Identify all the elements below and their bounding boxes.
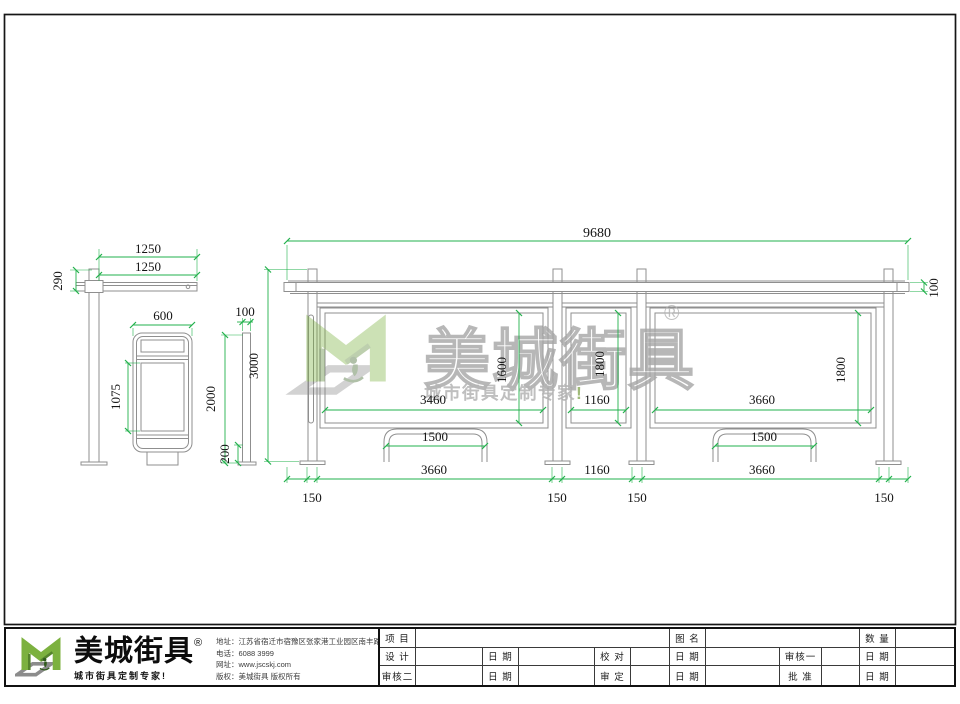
dim-offset-3: 150 xyxy=(627,490,647,505)
field-ratify-label: 批 准 xyxy=(780,666,822,685)
dim-post-width: 100 xyxy=(235,304,255,319)
dim-left-panel-width: 3460 xyxy=(420,392,446,407)
dim-lightbox-height: 1075 xyxy=(108,384,123,410)
dim-total-width: 9680 xyxy=(583,226,611,241)
field-date3-label: 日 期 xyxy=(860,648,896,667)
dim-bottom-left-span: 3660 xyxy=(421,462,447,477)
field-date4-value xyxy=(519,666,595,685)
field-date6-label: 日 期 xyxy=(860,666,896,685)
field-approve-value xyxy=(631,666,670,685)
dim-side-roof: 1250 xyxy=(135,259,161,274)
company-name: 美城街具® xyxy=(74,632,203,667)
field-date5-label: 日 期 xyxy=(670,666,706,685)
dim-roof-thickness: 100 xyxy=(926,278,941,298)
contact-website: 网址：www.jscskj.com xyxy=(216,659,376,671)
company-logo-icon xyxy=(14,631,68,683)
cad-sheet: 美城街具 ® 城市街具定制专家! xyxy=(0,0,960,704)
field-drawing-name-label: 图 名 xyxy=(670,629,706,648)
technical-drawing: 美城街具 ® 城市街具定制专家! xyxy=(0,0,960,704)
dim-offset-1: 150 xyxy=(302,490,322,505)
dim-mid-panel-height: 1800 xyxy=(592,351,607,377)
dim-post-height: 2000 xyxy=(203,386,218,412)
field-review1-label: 审核一 xyxy=(780,648,822,667)
field-design-value xyxy=(416,648,483,667)
field-date2-value xyxy=(706,648,780,667)
field-design-label: 设 计 xyxy=(380,648,416,667)
field-date1-label: 日 期 xyxy=(483,648,519,667)
company-logo: 美城街具® 城市街具定制专家! xyxy=(6,629,212,685)
field-date4-label: 日 期 xyxy=(483,666,519,685)
dim-side-roof-top: 1250 xyxy=(135,241,161,256)
contact-phone: 电话：6088 3999 xyxy=(216,648,376,660)
field-proofread-label: 校 对 xyxy=(595,648,631,667)
dim-mid-panel-width: 1160 xyxy=(584,392,610,407)
post-4 xyxy=(884,269,893,461)
watermark-tagline: 城市街具定制专家! xyxy=(424,383,583,403)
field-quantity-value xyxy=(896,629,954,648)
field-date6-value xyxy=(896,666,954,685)
field-date3-value xyxy=(896,648,954,667)
dim-bottom-mid-span: 1160 xyxy=(584,462,610,477)
dim-bench-left: 1500 xyxy=(422,429,448,444)
dim-post-total-height: 3000 xyxy=(246,353,261,379)
dim-lightbox-width: 600 xyxy=(153,308,173,323)
field-project-label: 项 目 xyxy=(380,629,416,648)
title-block: 美城街具® 城市街具定制专家! 地址：江苏省宿迁市宿豫区张家港工业园区南丰路西侧… xyxy=(4,627,956,687)
title-block-table: 项 目 图 名 数 量 设 计 日 期 校 对 日 期 审核一 日 期 审核二 … xyxy=(378,629,954,685)
field-date1-value xyxy=(519,648,595,667)
contact-address: 地址：江苏省宿迁市宿豫区张家港工业园区南丰路西侧1号 xyxy=(216,636,376,648)
field-quantity-label: 数 量 xyxy=(860,629,896,648)
dim-side-roof-height: 290 xyxy=(50,271,65,291)
field-proofread-value xyxy=(631,648,670,667)
field-review1-value xyxy=(822,648,860,667)
registered-icon: ® xyxy=(194,637,203,649)
field-approve-label: 审 定 xyxy=(595,666,631,685)
side-view-geometry xyxy=(76,269,197,465)
field-review2-value xyxy=(416,666,483,685)
watermark-registered-icon: ® xyxy=(664,302,680,325)
field-review2-label: 审核二 xyxy=(380,666,416,685)
contact-copyright: 版权：美城街具 版权所有 xyxy=(216,671,376,683)
dim-left-panel-height: 1600 xyxy=(494,357,509,383)
dim-right-panel-height: 1800 xyxy=(833,357,848,383)
field-drawing-name-value xyxy=(706,629,860,648)
field-ratify-value xyxy=(822,666,860,685)
dim-post-base: 200 xyxy=(217,444,232,464)
dim-bottom-right-span: 3660 xyxy=(749,462,775,477)
dim-offset-4: 150 xyxy=(874,490,894,505)
dim-offset-2: 150 xyxy=(547,490,567,505)
field-project-value xyxy=(416,629,670,648)
company-slogan: 城市街具定制专家! xyxy=(74,669,203,682)
dim-bench-right: 1500 xyxy=(751,429,777,444)
field-date2-label: 日 期 xyxy=(670,648,706,667)
dim-right-panel-width: 3660 xyxy=(749,392,775,407)
field-date5-value xyxy=(706,666,780,685)
roof-beam xyxy=(284,283,909,292)
company-contact: 地址：江苏省宿迁市宿豫区张家港工业园区南丰路西侧1号 电话：6088 3999 … xyxy=(212,629,378,685)
